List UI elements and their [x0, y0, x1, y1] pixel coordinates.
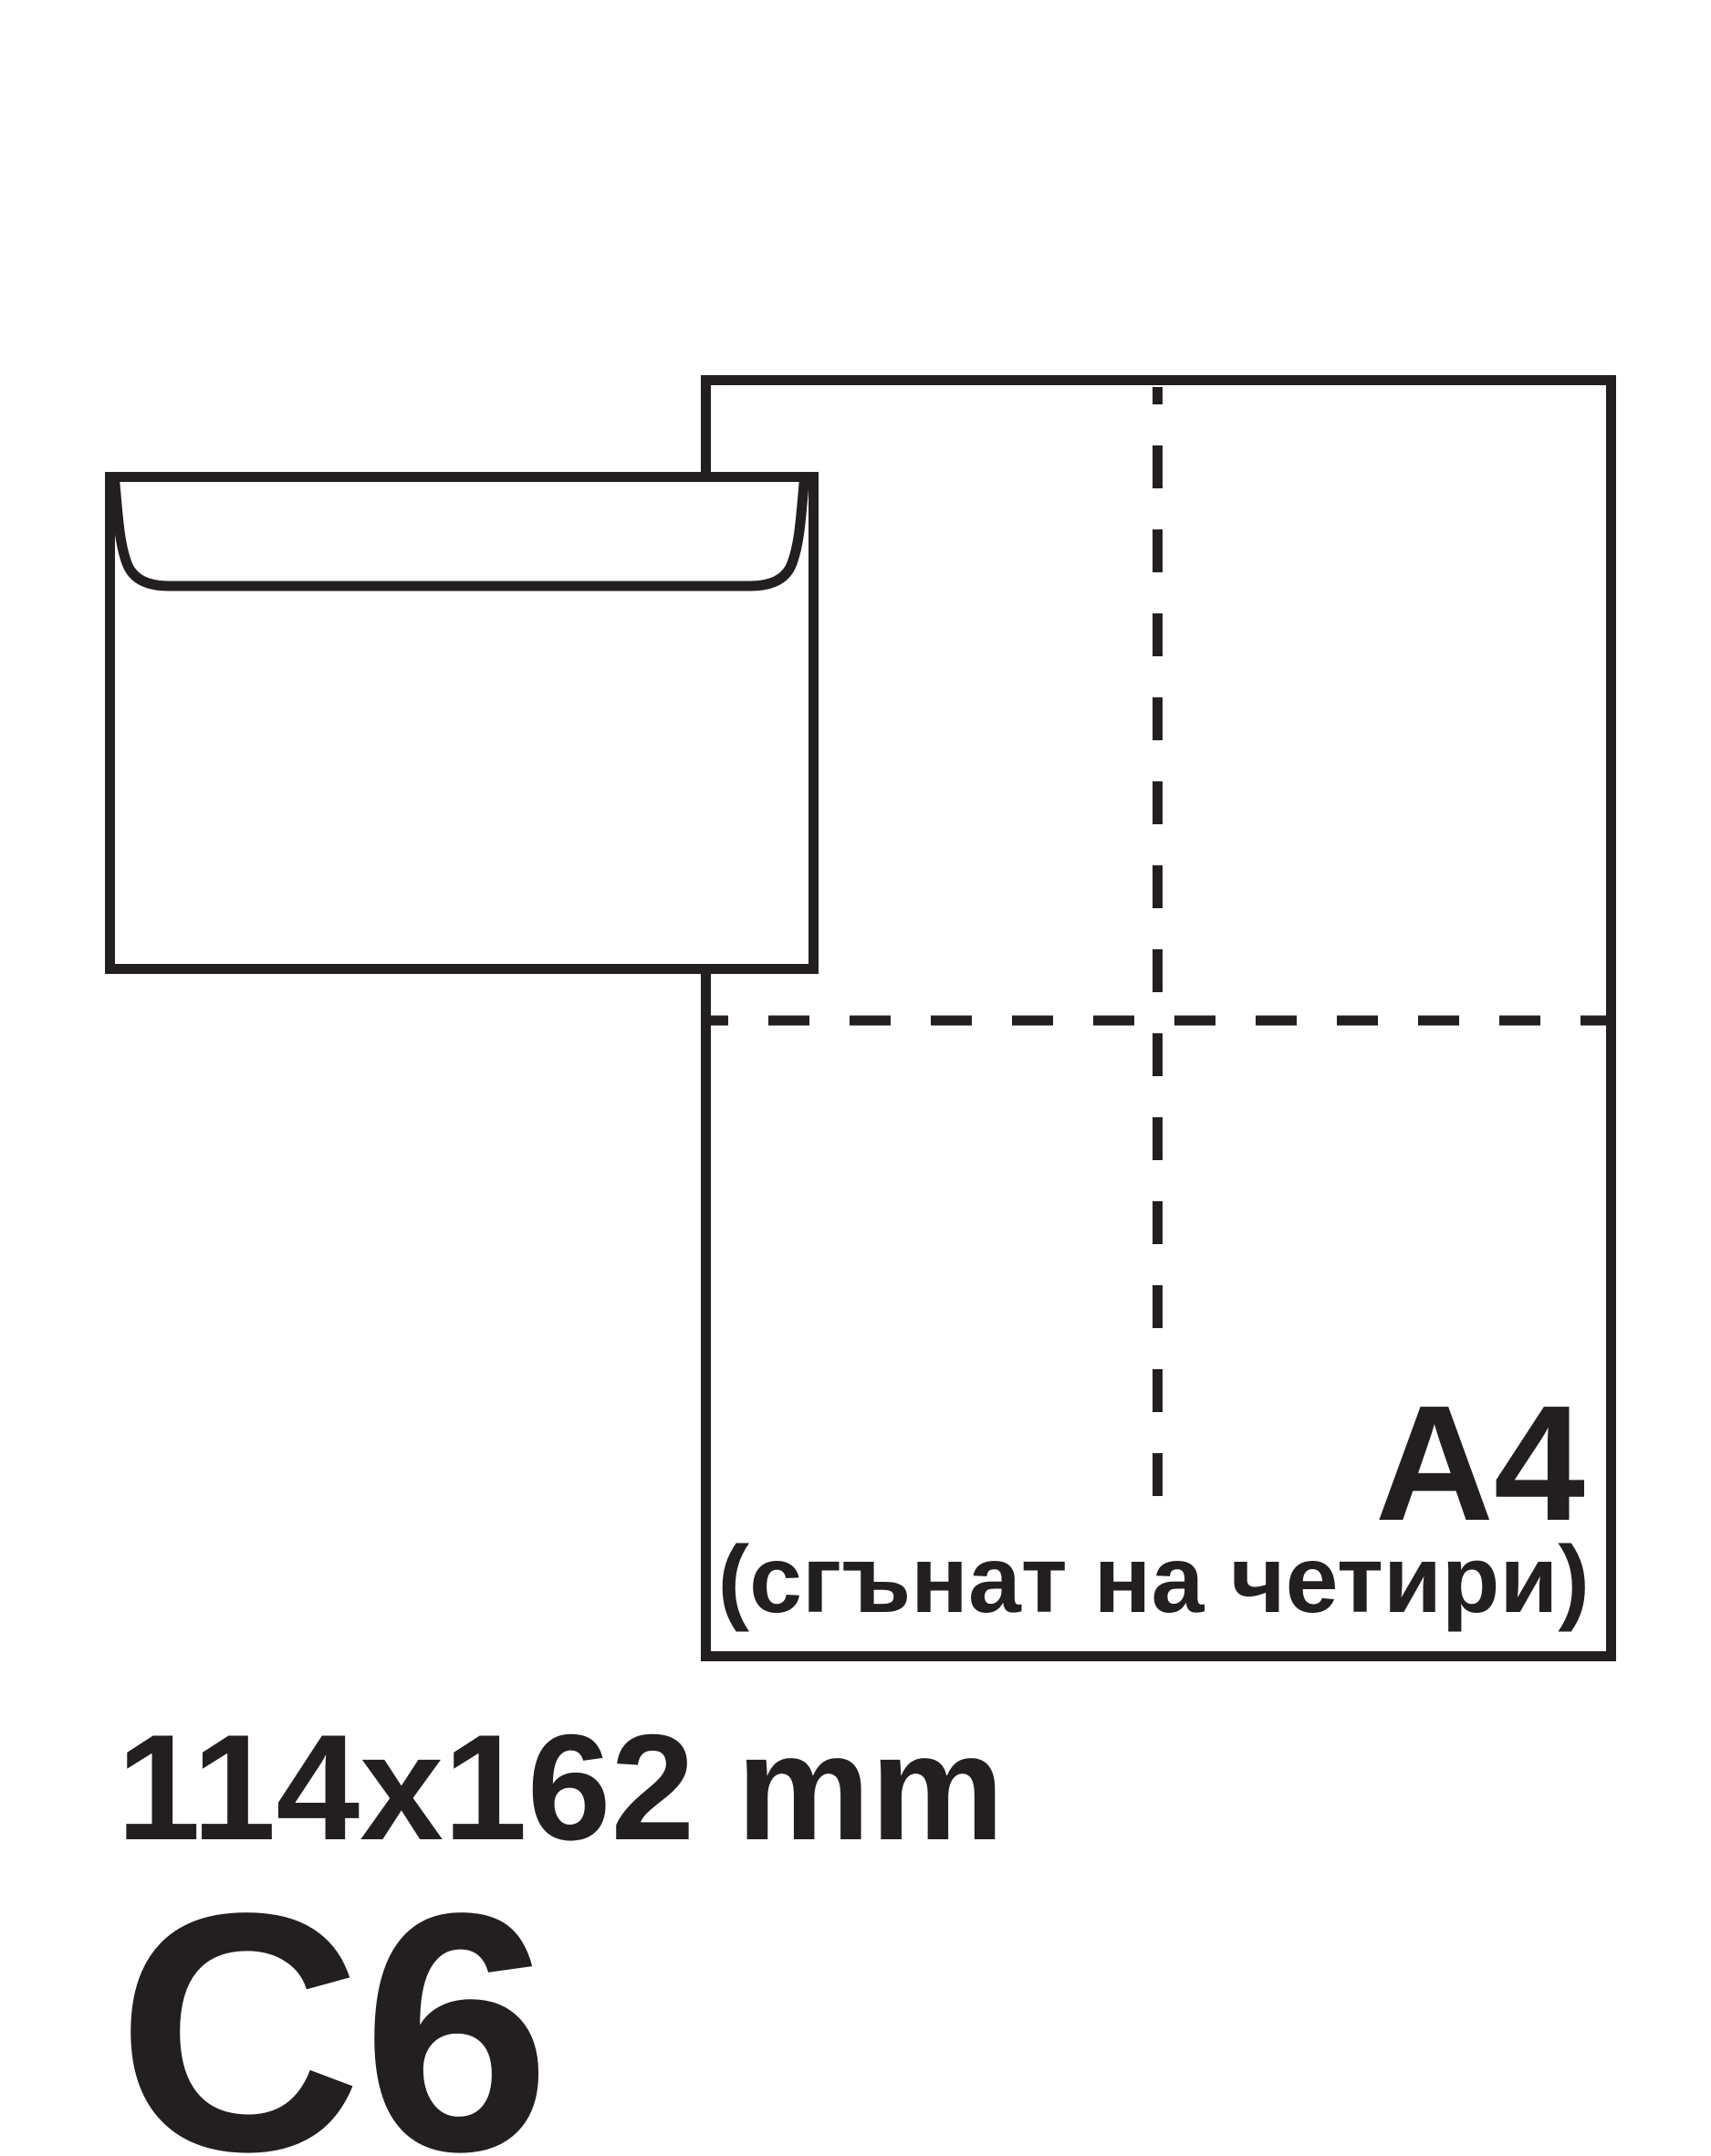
sheet-note-label: (сгънат на четири) [718, 1527, 1590, 1633]
envelope-format-label: C6 [117, 1842, 551, 2156]
envelope-size-diagram: A4 (сгънат на четири) 114x162 mm C6 [0, 0, 1711, 2156]
envelope-outline [110, 477, 814, 969]
